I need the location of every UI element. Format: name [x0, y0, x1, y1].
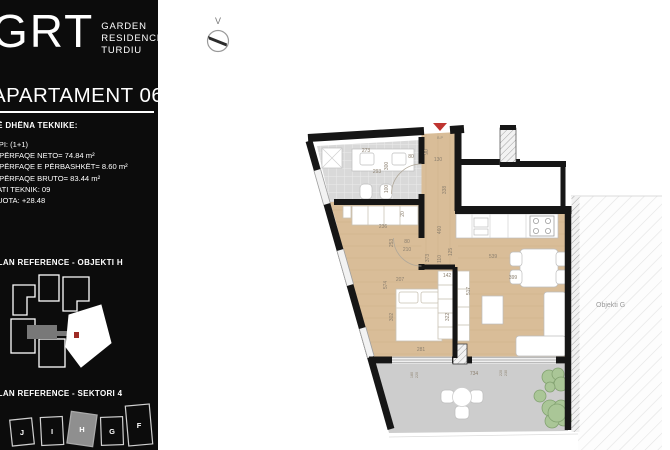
dimension-label: 253 [389, 239, 395, 248]
sector-label-i: I [51, 427, 53, 436]
floor-plan: V Objekti G [158, 0, 670, 450]
terrace-chair [470, 390, 483, 403]
technical-data: TË DHËNA TEKNIKE: TIPI: (1+1) SIPËRFAQE … [0, 121, 128, 206]
closet [352, 206, 418, 225]
closet-box [343, 206, 351, 218]
logo-name-line: TURDIU [101, 45, 158, 57]
dimension-label: 142 [443, 273, 452, 279]
dimension-label: 100 [384, 185, 390, 194]
pillow [421, 292, 439, 303]
dimension-label: 180 [410, 372, 414, 378]
dimension-label: 236 [379, 224, 388, 230]
building-outline [39, 275, 59, 301]
entrance-label: B.P [437, 136, 444, 140]
building-outline [63, 277, 89, 311]
sector-strip: J I H G F [3, 403, 155, 450]
dimension-label: 230 [504, 370, 508, 376]
logo-brand: GRT [0, 8, 94, 54]
kitchen-sink [474, 218, 488, 227]
sector-label-j: J [20, 428, 24, 437]
dimension-label: 220 [415, 372, 419, 378]
sink [360, 153, 374, 165]
north-label: V [215, 16, 221, 26]
logo-name: GARDEN RESIDENCE TURDIU [101, 21, 158, 57]
dimension-label: 300 [384, 162, 390, 171]
tv-unit [458, 271, 470, 341]
apartment-marker [74, 332, 79, 338]
site-plan-objekti-h [3, 271, 115, 382]
dimension-label: 207 [396, 277, 405, 283]
sector-label-h: H [79, 425, 84, 434]
terrace-chair [441, 390, 454, 403]
logo: GRT GARDEN RESIDENCE TURDIU [0, 8, 158, 57]
terrace-chair [455, 406, 469, 419]
pillow [399, 292, 418, 303]
ref-sektori-header: PLAN REFERENCE - SEKTORI 4 [0, 389, 122, 398]
tech-line: SIPËRFAQE BRUTO= 83.44 m² [0, 173, 128, 184]
sector-label-g: G [109, 427, 115, 436]
sidebar: GRT GARDEN RESIDENCE TURDIU APARTAMENT 0… [0, 0, 158, 450]
dimension-label: 110 [437, 255, 443, 263]
compass-icon: V [208, 16, 229, 52]
sector-label-f: F [137, 421, 142, 430]
technical-data-lines: TIPI: (1+1) SIPËRFAQE NETO= 74.84 m² SIP… [0, 139, 128, 206]
entrance-marker [433, 123, 447, 131]
title-divider [0, 111, 154, 113]
site-boundary [389, 434, 578, 437]
neighbor-label: Objekti G [596, 302, 625, 309]
dimension-label: 322 [445, 313, 451, 322]
dimension-label: 517 [466, 287, 472, 296]
toilet [360, 184, 372, 199]
ref-objekti-header: PLAN REFERENCE - OBJEKTI H [0, 258, 123, 267]
page: GRT GARDEN RESIDENCE TURDIU APARTAMENT 0… [0, 0, 670, 450]
logo-name-line: GARDEN [101, 21, 158, 33]
dimension-label: 130 [434, 157, 443, 163]
dimension-label: 574 [383, 281, 389, 290]
sofa [516, 336, 566, 356]
dimension-label: 90 [424, 149, 430, 155]
kitchen-sink [474, 229, 488, 235]
dimension-label: 80 [408, 154, 414, 160]
technical-data-header: TË DHËNA TEKNIKE: [0, 121, 128, 130]
chair [510, 252, 522, 266]
tech-line: TIPI: (1+1) [0, 139, 128, 150]
tech-line: KUOTA: +28.48 [0, 195, 128, 206]
sink [392, 153, 406, 165]
terrace-table [453, 388, 472, 407]
page-title: APARTAMENT 06 [0, 84, 158, 108]
dimension-label: 273 [362, 148, 371, 154]
dimension-label: 734 [470, 371, 479, 377]
dimension-label: 281 [417, 347, 426, 353]
dimension-label: 539 [489, 254, 498, 260]
logo-name-line: RESIDENCE [101, 33, 158, 45]
dimension-label: 293 [373, 169, 382, 175]
sektori-4-shape [66, 305, 111, 367]
dimension-label: 338 [442, 186, 448, 195]
dimension-label: 80 [404, 239, 410, 245]
neighbor-building-area [578, 196, 662, 450]
stove [530, 216, 554, 236]
dimension-label: 20 [400, 211, 406, 217]
highlight-corridor [27, 325, 57, 339]
building-outline [13, 285, 35, 315]
wardrobe [438, 271, 453, 339]
tech-line: SIPËRFAQE NETO= 74.84 m² [0, 150, 128, 161]
dimension-label: 399 [509, 275, 518, 281]
dimension-label: 220 [499, 370, 503, 376]
party-wall-hatch [572, 196, 580, 432]
dimension-label: 460 [437, 226, 443, 235]
coffee-table [482, 296, 503, 324]
dimension-label: 302 [389, 313, 395, 322]
building-outline [39, 339, 65, 367]
dimension-label: 125 [448, 248, 454, 257]
tech-line: SIPËRFAQE E PËRBASHKËT= 8.60 m² [0, 161, 128, 172]
dimension-label: 210 [403, 247, 412, 253]
tech-line: KATI TEKNIK: 09 [0, 184, 128, 195]
dining-table [520, 249, 558, 287]
dimension-label: 373 [425, 254, 431, 263]
